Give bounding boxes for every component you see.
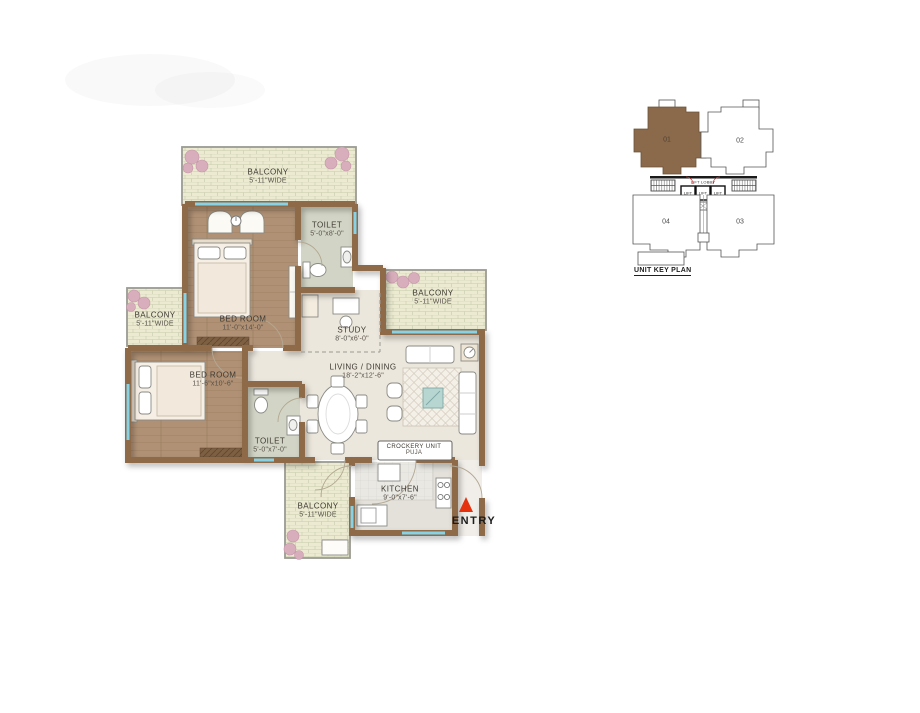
room-dim: 5'-11"WIDE — [134, 321, 175, 328]
room-dim: 5'-0"x8'-0" — [310, 231, 344, 238]
room-dim: 11'-0"x14'-0" — [220, 325, 267, 332]
unit-04-number: 04 — [662, 219, 670, 226]
watermark-smudge — [65, 54, 265, 108]
floor-plan-graphic — [0, 0, 920, 713]
unit-03-shape — [707, 195, 774, 257]
balcony-right-label: BALCONY 5'-11"WIDE — [412, 289, 453, 306]
unit-key-plan-title: UNIT KEY PLAN — [634, 267, 691, 276]
balcony-left-label: BALCONY 5'-11"WIDE — [134, 311, 175, 328]
balcony-bottom-label: BALCONY 5'-11"WIDE — [297, 502, 338, 519]
room-dim: 5'-0"x7'-0" — [253, 447, 287, 454]
room-dim: 5'-11"WIDE — [412, 299, 453, 306]
room-dim: 18'-2"x12'-6" — [330, 373, 397, 380]
room-name: BALCONY — [412, 289, 453, 298]
room-name: TOILET — [253, 437, 287, 446]
unit-03-number: 03 — [736, 219, 744, 226]
lift-lobby-label: LIFT LOBBY — [691, 180, 716, 185]
room-dim: 9'-0"x7'-6" — [381, 495, 419, 502]
room-name: BED ROOM — [190, 371, 237, 380]
living-dining-label: LIVING / DINING 18'-2"x12'-6" — [330, 363, 397, 380]
room-name: BALCONY — [297, 502, 338, 511]
study-label: STUDY 8'-0"x6'-0" — [335, 326, 369, 343]
bedroom-bottom-label: BED ROOM 11'-6"x10'-6" — [190, 371, 237, 388]
room-name: STUDY — [335, 326, 369, 335]
crockery-unit-label: CROCKERY UNIT PUJA — [387, 444, 442, 456]
room-dim: 11'-6"x10'-6" — [190, 381, 237, 388]
room-name: LIVING / DINING — [330, 363, 397, 372]
balcony-top-label: BALCONY 5'-11"WIDE — [247, 168, 288, 185]
unit-04-shape — [633, 195, 700, 257]
room-dim: 8'-0"x6'-0" — [335, 336, 369, 343]
lift-label-3: LIFT — [714, 191, 722, 196]
room-name: BALCONY — [247, 168, 288, 177]
room-name: KITCHEN — [381, 485, 419, 494]
bedroom-top-label: BED ROOM 11'-0"x14'-0" — [220, 315, 267, 332]
room-dim: 5'-11"WIDE — [297, 512, 338, 519]
lift-label-2: LIFT — [699, 191, 707, 196]
room-name: BED ROOM — [220, 315, 267, 324]
unit-01-number: 01 — [663, 137, 671, 144]
unit-02-number: 02 — [736, 138, 744, 145]
entry-label: ENTRY — [452, 515, 496, 527]
floor-plan-page: BALCONY 5'-11"WIDE TOILET 5'-0"x8'-0" BE… — [0, 0, 920, 713]
room-name: BALCONY — [134, 311, 175, 320]
room-dim: 5'-11"WIDE — [247, 178, 288, 185]
room-name: TOILET — [310, 221, 344, 230]
kitchen-label: KITCHEN 9'-0"x7'-6" — [381, 485, 419, 502]
toilet-bottom-label: TOILET 5'-0"x7'-0" — [253, 437, 287, 454]
toilet-top-label: TOILET 5'-0"x8'-0" — [310, 221, 344, 238]
lift-label-1: LIFT — [684, 191, 692, 196]
room-dim: PUJA — [387, 450, 442, 456]
